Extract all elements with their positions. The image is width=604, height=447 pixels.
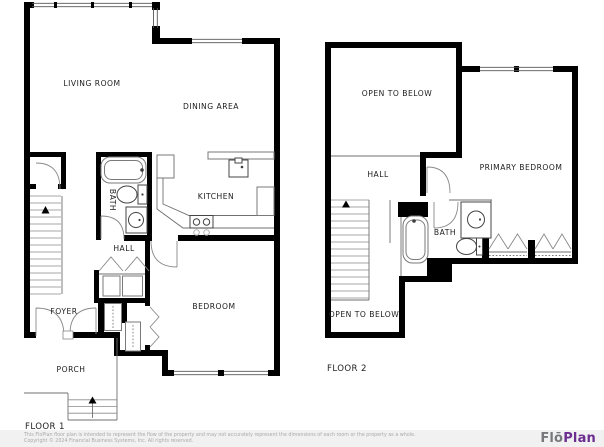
bedroom-door-arc: [151, 241, 177, 267]
room-label-open-to-below-top: OPEN TO BELOW: [362, 89, 432, 98]
floor1-bath-fixtures: [101, 157, 147, 233]
bifold-doors-closet2: [535, 234, 571, 249]
room-label-hall-f1: HALL: [113, 244, 135, 253]
kitchen-sink: [229, 158, 248, 177]
room-label-bath-f1: BATH: [108, 189, 117, 211]
porch-steps: [24, 338, 117, 420]
floor-plan-drawing: LIVING ROOM DINING AREA KITCHEN BATH HAL…: [0, 0, 604, 430]
floor2-walls: [325, 42, 578, 338]
footer-legal: This FloPlan floor plan is intended to r…: [0, 433, 416, 445]
floor2-label: FLOOR 2: [327, 364, 367, 374]
footer-bar: This FloPlan floor plan is intended to r…: [0, 430, 604, 447]
footer-disclaimer: This FloPlan floor plan is intended to r…: [24, 433, 416, 439]
logo-flo-text: Flō: [540, 431, 563, 446]
logo-plan-text: Plan: [563, 431, 596, 446]
toilet: [117, 185, 147, 204]
room-label-porch: PORCH: [57, 365, 86, 374]
room-label-hall-f2: HALL: [367, 170, 389, 179]
floor1-label: FLOOR 1: [25, 422, 65, 430]
bath2-door-arc: [434, 202, 458, 228]
bathtub: [101, 157, 146, 183]
room-label-foyer: FOYER: [50, 307, 77, 316]
bifold-doors-hall-closet: [99, 257, 149, 271]
room-label-dining-area: DINING AREA: [183, 102, 239, 111]
toilet2: [457, 238, 483, 255]
bathtub2: [403, 216, 428, 263]
stove: [190, 216, 213, 236]
closet-door-arc: [36, 163, 60, 189]
stairs2-up-arrow: [342, 201, 350, 208]
sink-vanity: [126, 207, 147, 233]
bifold-doors-bedroom-closet: [150, 307, 159, 347]
bath-door-arc: [101, 216, 124, 239]
room-label-bath-f2: BATH: [434, 228, 456, 237]
floor-plan-page: LIVING ROOM DINING AREA KITCHEN BATH HAL…: [0, 0, 604, 447]
bifold-doors-closet1: [489, 234, 527, 249]
room-label-primary-bedroom: PRIMARY BEDROOM: [480, 163, 563, 172]
floor2: OPEN TO BELOW HALL PRIMARY BEDROOM BATH …: [325, 42, 578, 374]
front-door-threshold: [63, 331, 73, 339]
room-label-kitchen: KITCHEN: [198, 192, 234, 201]
floplan-logo: FlōPlan: [540, 431, 604, 446]
refrigerator: [157, 155, 174, 178]
footer-copyright: Copyright © 2024 Financial Business Syst…: [24, 439, 416, 445]
counter-right: [257, 187, 274, 216]
primary-bedroom-door-arc: [427, 167, 450, 193]
sink-vanity2: [461, 202, 491, 238]
staircase-floor1: [30, 196, 62, 294]
counter-edge-outer: [157, 178, 274, 228]
floor1-walls: [24, 2, 280, 376]
staircase-floor2: [331, 200, 390, 300]
floor1: LIVING ROOM DINING AREA KITCHEN BATH HAL…: [24, 2, 280, 430]
room-label-bedroom: BEDROOM: [192, 302, 235, 311]
room-label-open-to-below-bottom: OPEN TO BELOW: [329, 310, 399, 319]
room-label-living-room: LIVING ROOM: [63, 79, 120, 88]
floor2-doors: [427, 167, 458, 228]
